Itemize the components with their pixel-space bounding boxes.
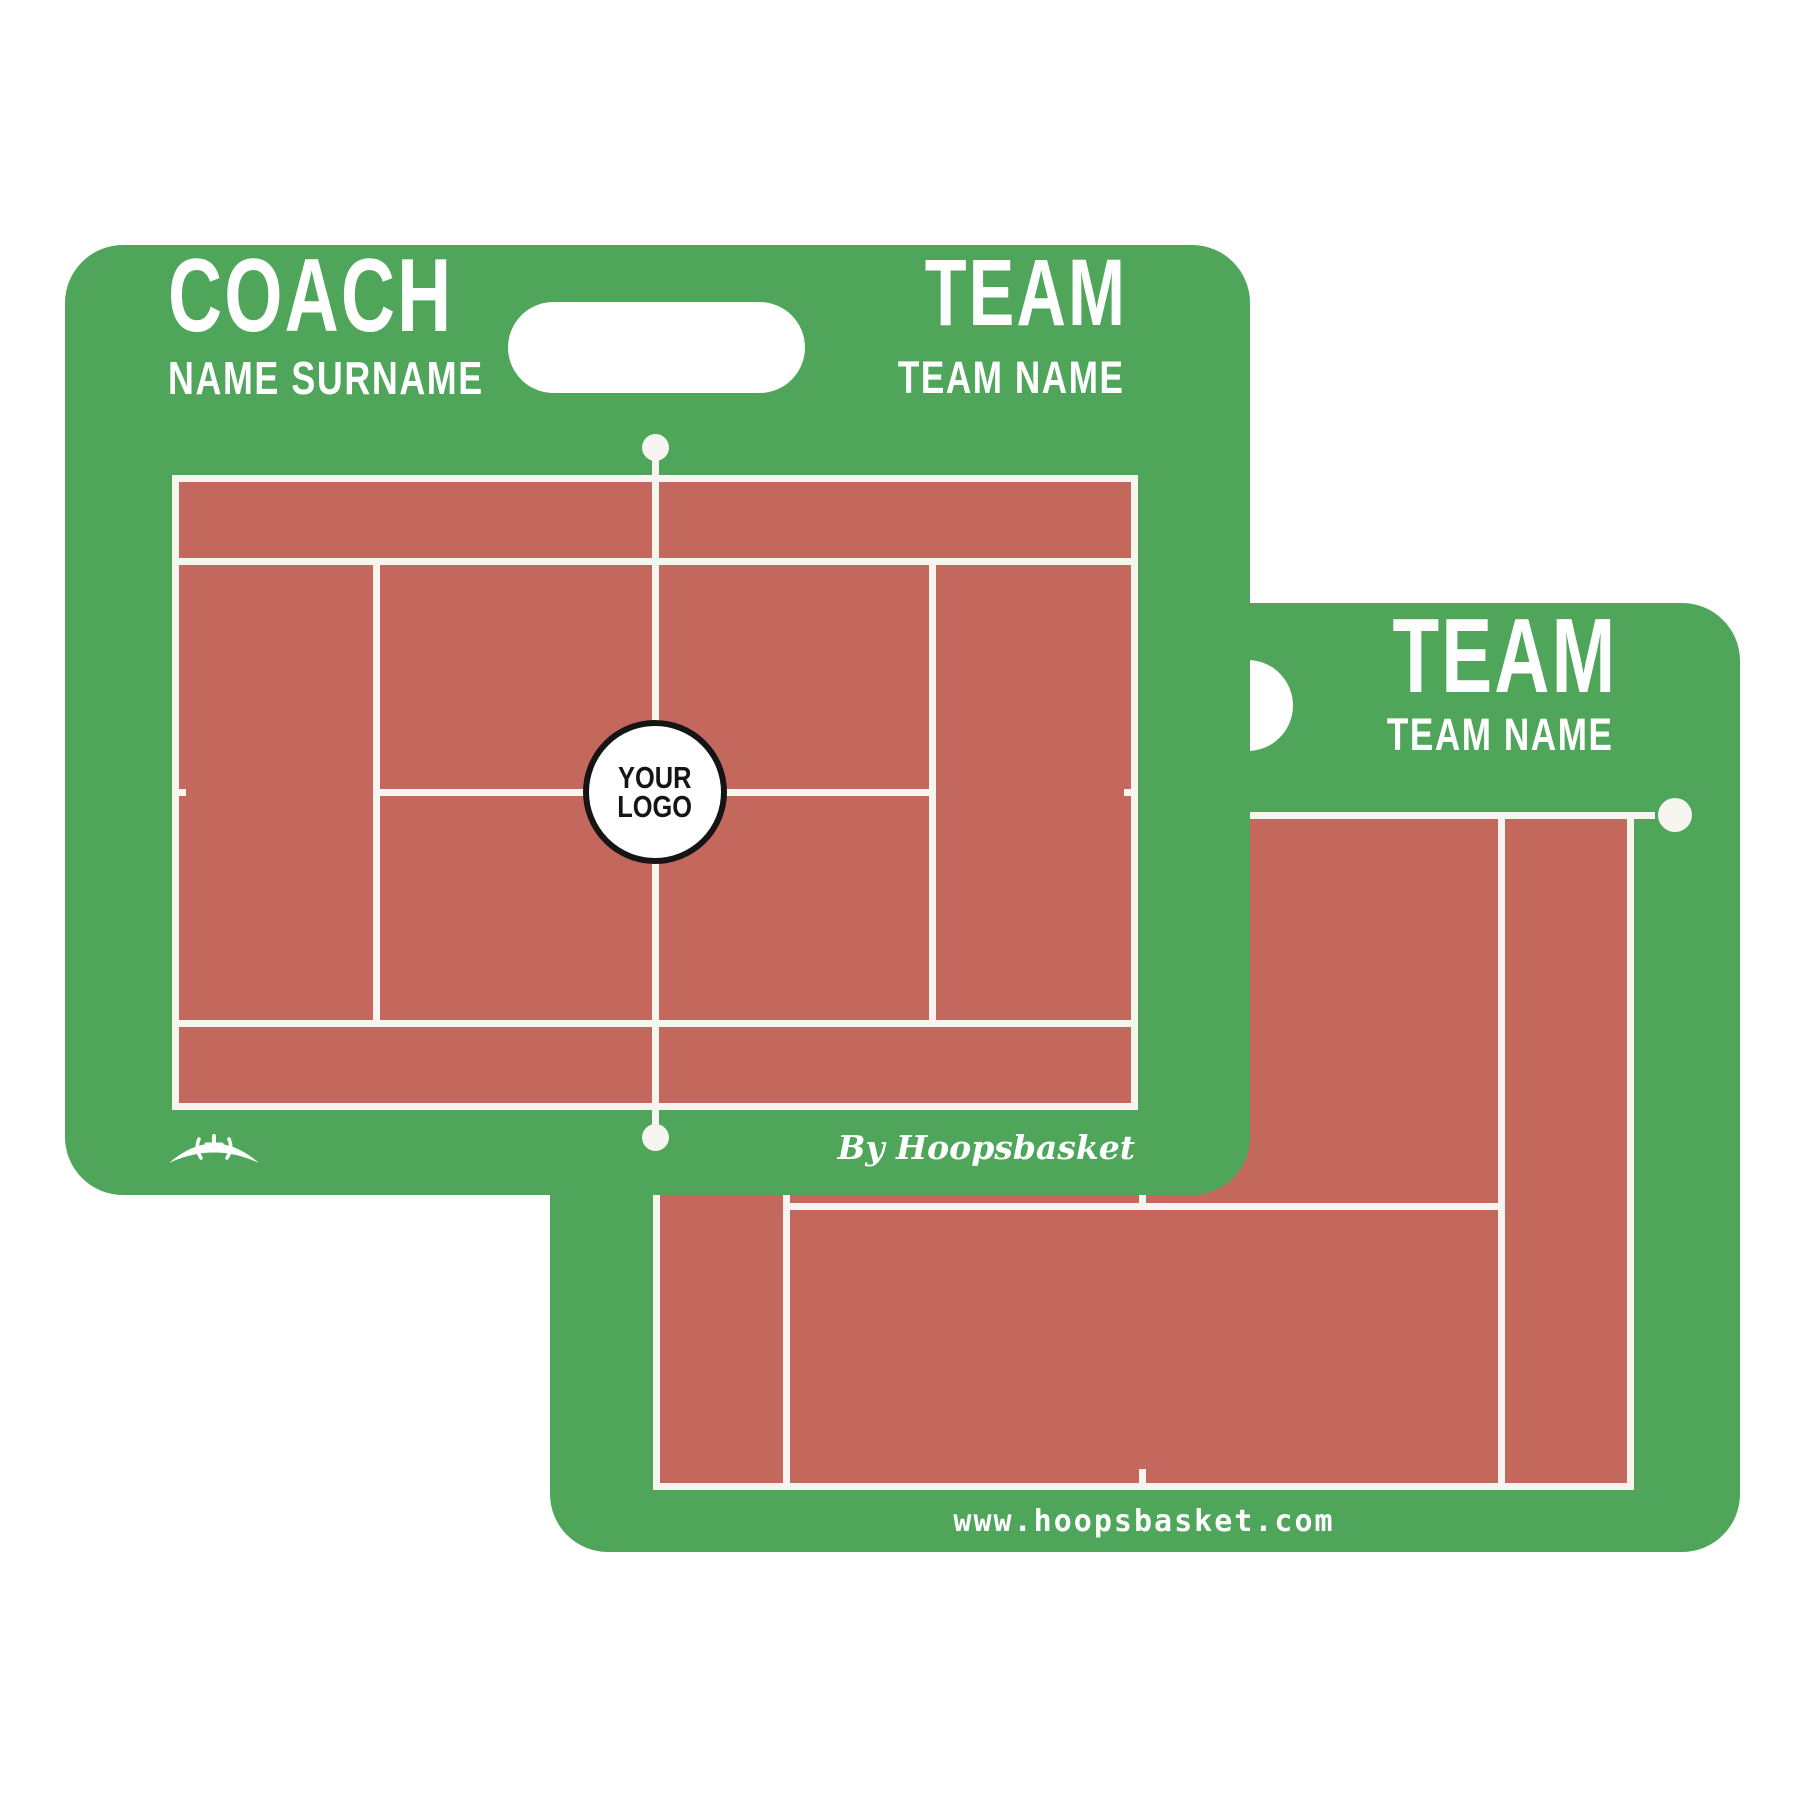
front-court-right-service-line	[929, 562, 936, 1027]
logo-placeholder: YOUR LOGO	[583, 720, 727, 864]
back-court-right-sideline	[1627, 812, 1634, 1490]
back-court-right-singles-line	[1498, 819, 1505, 1483]
product-mockup: TEAM TEAM NAME www.hoopsbasket.com COACH…	[0, 0, 1800, 1800]
logo-placeholder-line1: YOUR	[618, 763, 691, 792]
front-court-right-center-mark	[1124, 789, 1138, 796]
basketball-icon	[168, 1131, 260, 1165]
front-net-post-bottom	[642, 1124, 669, 1151]
front-team-name: TEAM NAME	[897, 355, 1124, 400]
coach-label: COACH	[168, 244, 453, 348]
back-team-label: TEAM	[1392, 603, 1617, 709]
back-team-name: TEAM NAME	[1386, 712, 1613, 757]
front-court-left-center-mark	[172, 789, 186, 796]
back-net-post-right	[1658, 798, 1692, 832]
back-court-center-mark	[1139, 1469, 1146, 1483]
coach-name: NAME SURNAME	[168, 355, 484, 401]
front-team-label: TEAM	[925, 246, 1127, 341]
back-court-baseline	[653, 1483, 1634, 1490]
brand-script: By Hoopsbasket	[837, 1128, 1135, 1167]
website-url: www.hoopsbasket.com	[894, 1504, 1394, 1539]
logo-placeholder-line2: LOGO	[618, 792, 693, 821]
front-handle-cutout	[508, 302, 805, 393]
front-court-left-service-line	[373, 562, 380, 1027]
front-net-post-top	[642, 434, 669, 461]
